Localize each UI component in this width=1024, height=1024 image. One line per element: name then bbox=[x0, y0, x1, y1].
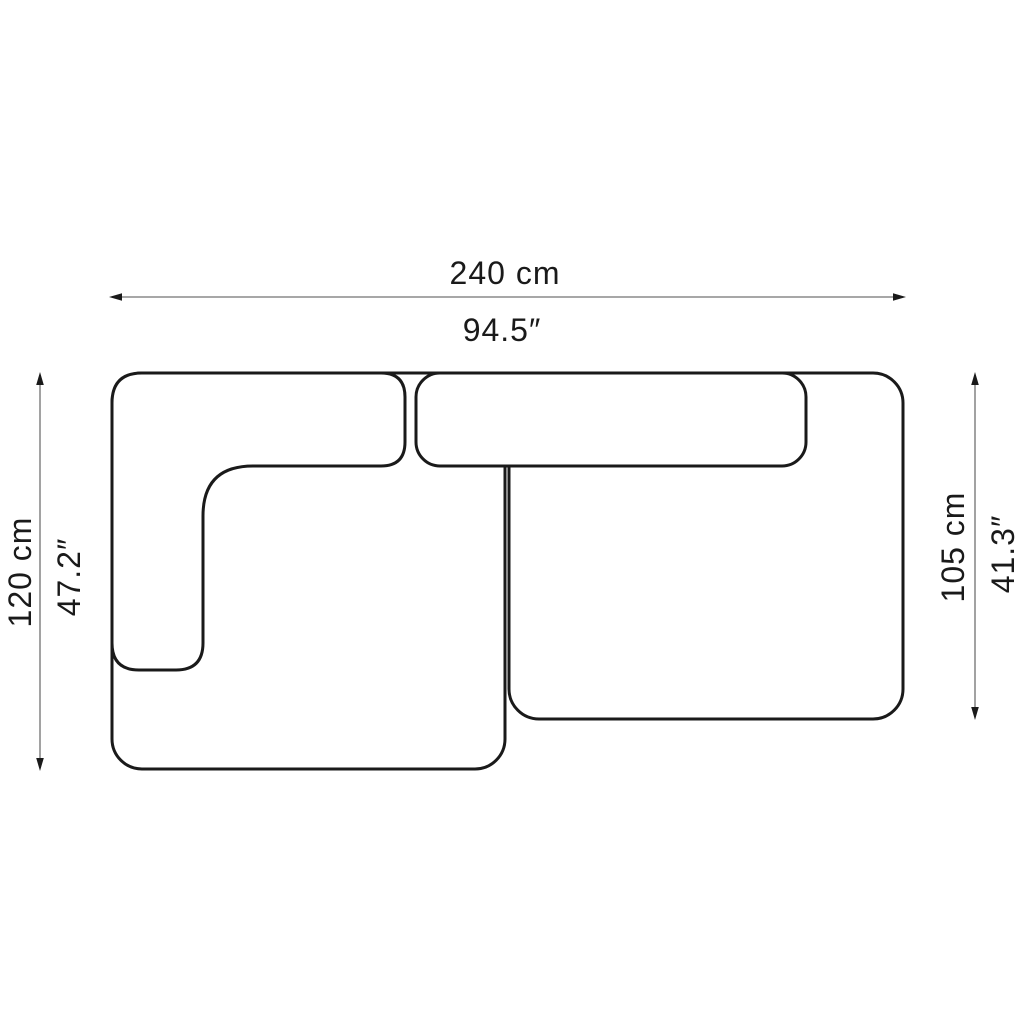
right-depth-arrow-top-icon bbox=[971, 372, 979, 385]
width-arrow-left-icon bbox=[109, 293, 122, 301]
right-depth-label-cm: 105 cm bbox=[935, 492, 971, 603]
sofa-outlines bbox=[112, 373, 903, 769]
right-backrest-outline bbox=[416, 373, 806, 466]
left-depth-arrow-bottom-icon bbox=[36, 758, 44, 771]
left-depth-dimension: 120 cm 47.2″ bbox=[2, 372, 87, 771]
sofa-dimension-diagram: 240 cm 94.5″ 120 cm 47.2″ 105 cm 41.3″ bbox=[0, 0, 1024, 1024]
left-depth-arrow-top-icon bbox=[36, 372, 44, 385]
right-depth-dimension: 105 cm 41.3″ bbox=[935, 372, 1021, 720]
width-dimension: 240 cm 94.5″ bbox=[109, 255, 906, 348]
left-depth-label-inches: 47.2″ bbox=[51, 538, 87, 617]
sofa-plan-svg: 240 cm 94.5″ 120 cm 47.2″ 105 cm 41.3″ bbox=[0, 0, 1024, 1024]
right-depth-label-inches: 41.3″ bbox=[985, 515, 1021, 594]
width-arrow-right-icon bbox=[893, 293, 906, 301]
right-depth-arrow-bottom-icon bbox=[971, 707, 979, 720]
left-depth-label-cm: 120 cm bbox=[2, 517, 38, 628]
width-label-inches: 94.5″ bbox=[463, 312, 542, 348]
width-label-cm: 240 cm bbox=[450, 255, 561, 291]
